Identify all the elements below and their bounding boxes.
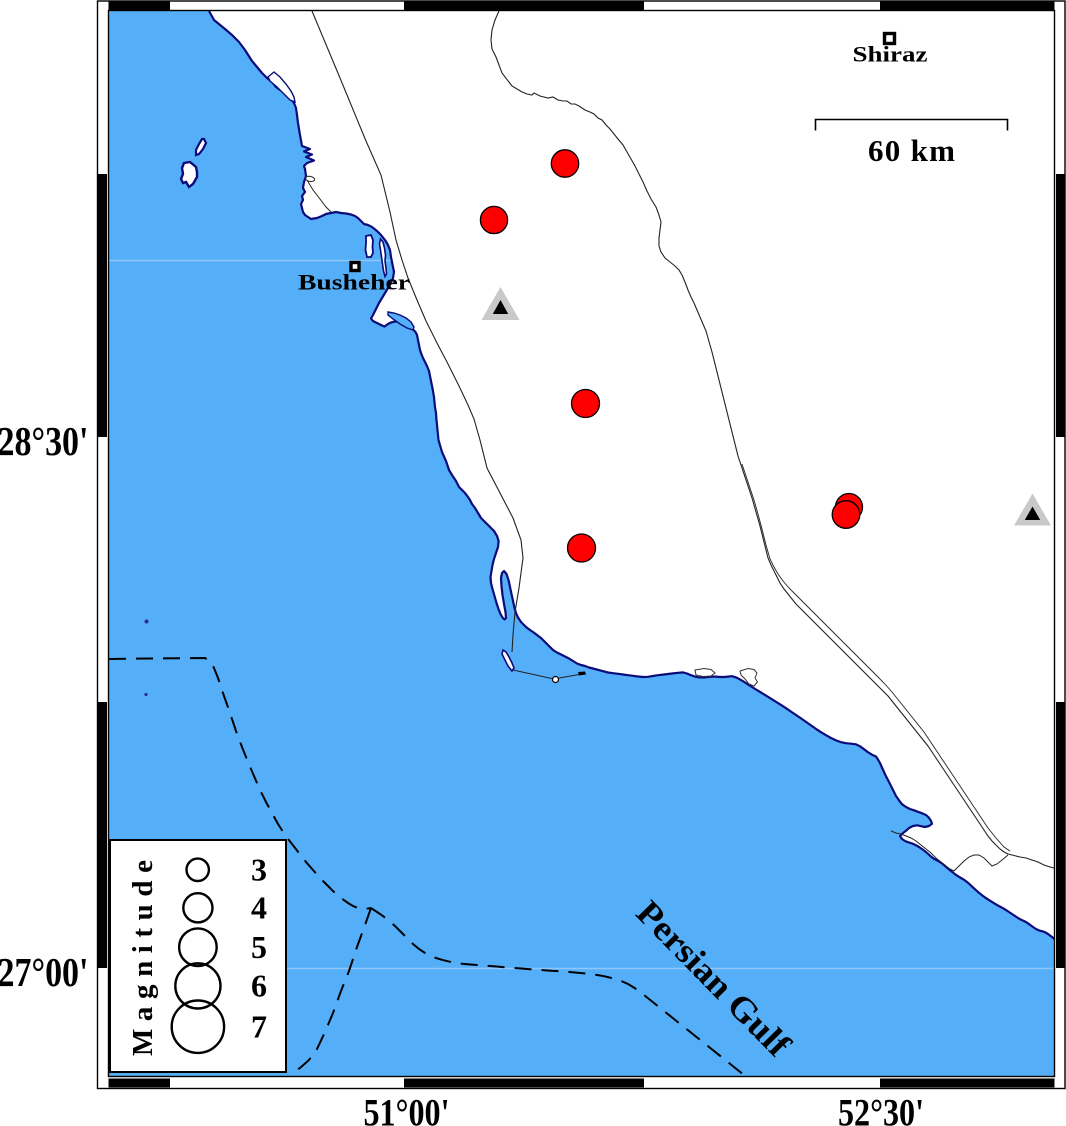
svg-text:28°30': 28°30' [0, 418, 89, 464]
svg-text:7: 7 [251, 1008, 267, 1044]
svg-text:52°30': 52°30' [838, 1092, 924, 1126]
svg-text:3: 3 [251, 852, 267, 888]
svg-text:5: 5 [251, 929, 267, 965]
svg-text:60 km: 60 km [868, 133, 955, 168]
svg-text:Busheher: Busheher [298, 270, 410, 295]
svg-text:27°00': 27°00' [0, 949, 89, 995]
svg-text:Shiraz: Shiraz [853, 42, 928, 67]
svg-text:6: 6 [251, 968, 267, 1004]
svg-text:4: 4 [251, 890, 267, 926]
svg-text:51°00': 51°00' [364, 1092, 450, 1126]
